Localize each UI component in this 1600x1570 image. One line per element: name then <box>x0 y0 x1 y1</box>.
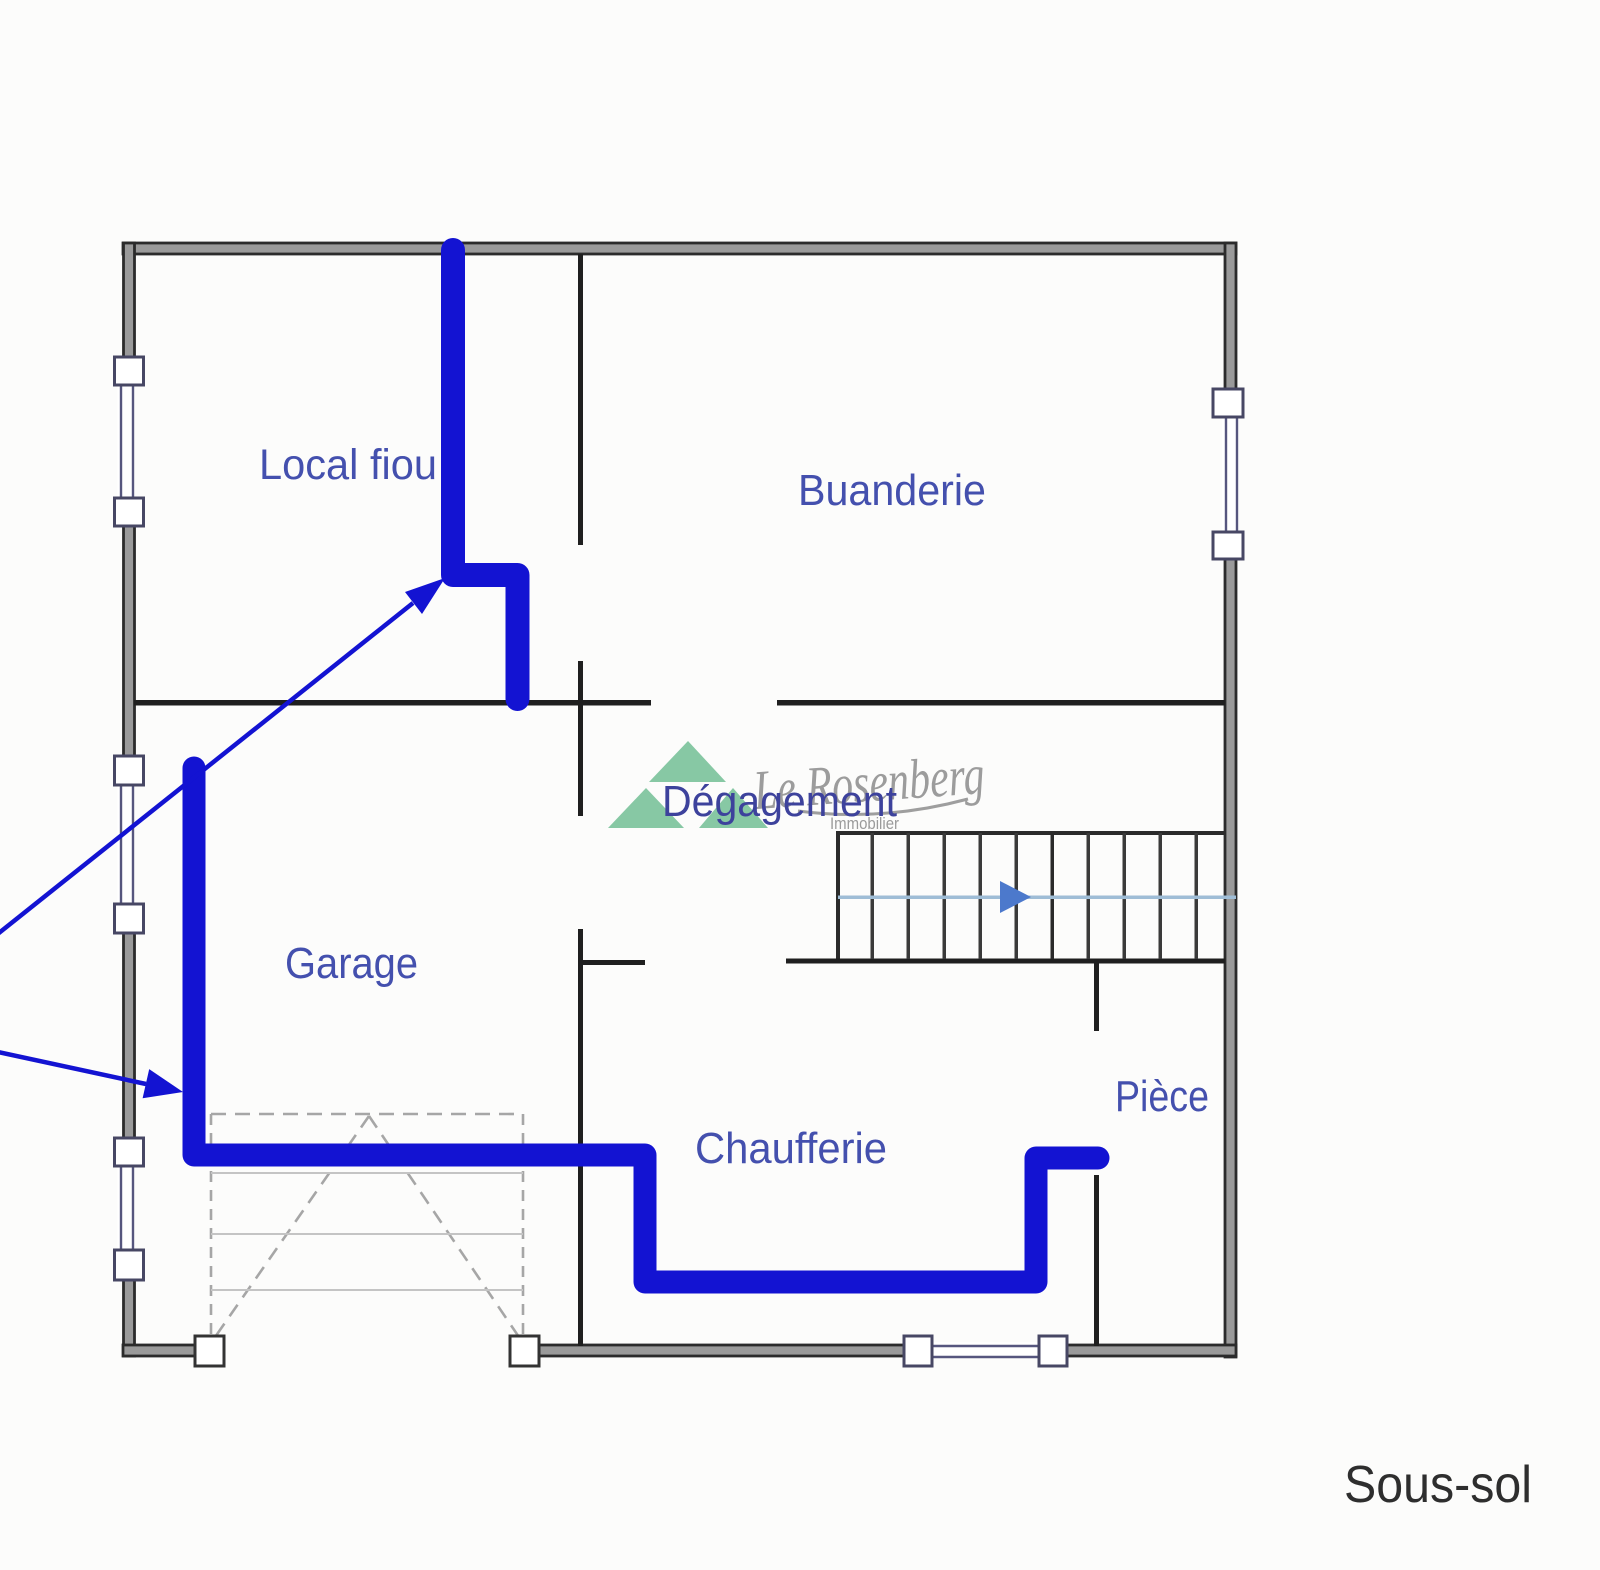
svg-text:Local fiou: Local fiou <box>259 441 437 489</box>
svg-text:Dégagement: Dégagement <box>662 777 897 826</box>
svg-text:Pièce: Pièce <box>1115 1072 1209 1121</box>
svg-text:Garage: Garage <box>285 939 418 988</box>
svg-text:Buanderie: Buanderie <box>798 466 986 515</box>
svg-text:Sous-sol: Sous-sol <box>1344 1456 1532 1514</box>
svg-text:Chaufferie: Chaufferie <box>695 1124 887 1173</box>
